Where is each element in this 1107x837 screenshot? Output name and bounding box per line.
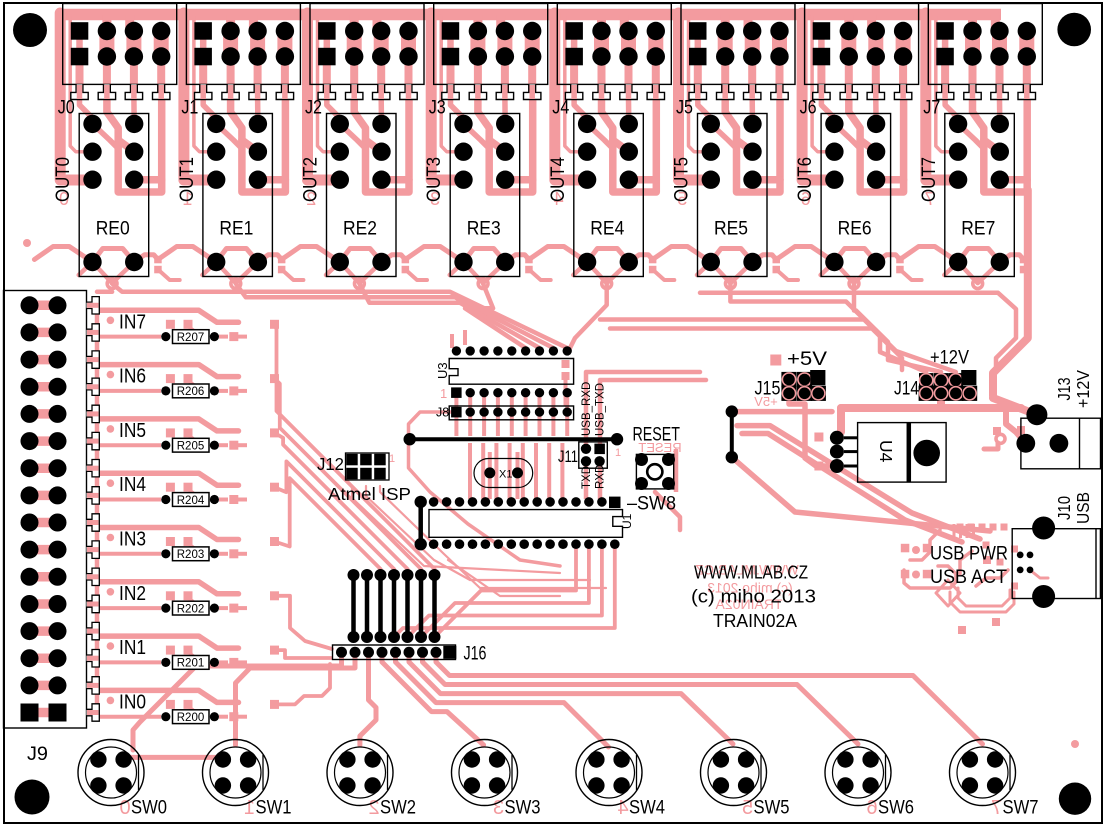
svg-text:X1: X1 xyxy=(499,469,512,481)
svg-text:1: 1 xyxy=(440,386,447,401)
svg-text:IN2: IN2 xyxy=(119,582,146,605)
svg-text:+12V: +12V xyxy=(930,347,969,369)
svg-text:USB_RXD: USB_RXD xyxy=(581,382,593,436)
svg-text:IN3: IN3 xyxy=(119,528,146,551)
svg-text:U4: U4 xyxy=(876,440,896,463)
svg-text:R201: R201 xyxy=(177,658,205,670)
svg-text:J7: J7 xyxy=(923,98,940,119)
svg-text:OUT3: OUT3 xyxy=(423,157,445,202)
svg-text:J0: J0 xyxy=(58,98,75,119)
svg-text:SW2: SW2 xyxy=(380,797,416,819)
svg-text:J11: J11 xyxy=(558,447,578,466)
svg-text:J13: J13 xyxy=(1054,378,1074,401)
svg-text:R202: R202 xyxy=(177,603,205,615)
svg-text:RE2: RE2 xyxy=(343,218,377,240)
svg-text:J9: J9 xyxy=(27,743,48,765)
svg-text:SW4: SW4 xyxy=(629,797,665,819)
svg-text:SW3: SW3 xyxy=(505,797,541,819)
svg-text:IN6: IN6 xyxy=(119,365,146,388)
svg-text:RE1: RE1 xyxy=(219,218,253,240)
svg-text:SW6: SW6 xyxy=(878,797,914,819)
svg-text:USB: USB xyxy=(1073,492,1093,524)
svg-text:RE0: RE0 xyxy=(96,218,130,240)
svg-text:R200: R200 xyxy=(177,712,205,724)
svg-text:J2: J2 xyxy=(305,98,322,119)
svg-text:J6: J6 xyxy=(800,98,817,119)
svg-text:1: 1 xyxy=(389,453,395,465)
svg-text:IN5: IN5 xyxy=(119,419,146,442)
svg-text:OUT4: OUT4 xyxy=(547,157,569,202)
svg-text:–SW8: –SW8 xyxy=(627,493,676,515)
svg-text:J15: J15 xyxy=(755,378,781,400)
svg-text:+12V: +12V xyxy=(1073,370,1093,408)
svg-text:USB PWR: USB PWR xyxy=(930,543,1008,565)
svg-text:J16: J16 xyxy=(464,643,487,665)
svg-text:1: 1 xyxy=(615,447,621,459)
svg-text:(c) miho 2013: (c) miho 2013 xyxy=(691,586,816,607)
svg-text:SW0: SW0 xyxy=(131,797,167,819)
svg-text:R203: R203 xyxy=(177,549,205,561)
svg-text:SW1: SW1 xyxy=(256,797,292,819)
svg-text:U1: U1 xyxy=(620,513,634,529)
svg-text:OUT0: OUT0 xyxy=(52,157,74,202)
svg-text:SW7: SW7 xyxy=(1003,797,1039,819)
svg-text:OUT5: OUT5 xyxy=(670,157,692,202)
svg-text:U3: U3 xyxy=(435,362,450,379)
svg-text:R205: R205 xyxy=(177,441,205,453)
svg-text:OUT2: OUT2 xyxy=(300,157,322,202)
svg-text:USB_TXD: USB_TXD xyxy=(595,383,607,436)
svg-text:RE4: RE4 xyxy=(590,218,624,240)
svg-text:SW5: SW5 xyxy=(754,797,790,819)
svg-text:RE7: RE7 xyxy=(961,218,995,240)
svg-text:WWW.MLAB.CZ: WWW.MLAB.CZ xyxy=(694,562,808,583)
svg-text:R206: R206 xyxy=(177,386,205,398)
svg-text:OUT6: OUT6 xyxy=(794,157,816,202)
svg-text:IN4: IN4 xyxy=(119,473,146,496)
svg-text:TRAIN02A: TRAIN02A xyxy=(713,610,798,631)
svg-text:J5: J5 xyxy=(676,98,693,119)
svg-text:TXD: TXD xyxy=(581,466,593,489)
svg-text:+5V: +5V xyxy=(787,348,827,370)
svg-text:J10: J10 xyxy=(1054,496,1074,520)
svg-text:J1: J1 xyxy=(181,98,198,119)
svg-text:USB ACT: USB ACT xyxy=(930,566,1007,588)
svg-text:RXD: RXD xyxy=(595,465,607,489)
svg-text:OUT7: OUT7 xyxy=(918,157,940,202)
svg-text:IN7: IN7 xyxy=(119,310,146,333)
svg-text:RE3: RE3 xyxy=(467,218,501,240)
svg-text:IN0: IN0 xyxy=(119,690,146,713)
svg-text:J8: J8 xyxy=(436,406,449,420)
svg-text:J12: J12 xyxy=(317,454,344,474)
svg-text:RE5: RE5 xyxy=(714,218,748,240)
svg-text:R207: R207 xyxy=(177,332,205,344)
svg-text:IN1: IN1 xyxy=(119,636,146,659)
svg-text:RE6: RE6 xyxy=(838,218,872,240)
svg-text:J4: J4 xyxy=(552,98,569,119)
svg-text:OUT1: OUT1 xyxy=(176,157,198,202)
svg-text:J3: J3 xyxy=(429,98,446,119)
svg-text:Atmel ISP: Atmel ISP xyxy=(328,484,411,504)
svg-text:J14: J14 xyxy=(894,378,919,400)
svg-text:RESET: RESET xyxy=(633,424,681,446)
svg-text:R204: R204 xyxy=(177,495,205,507)
